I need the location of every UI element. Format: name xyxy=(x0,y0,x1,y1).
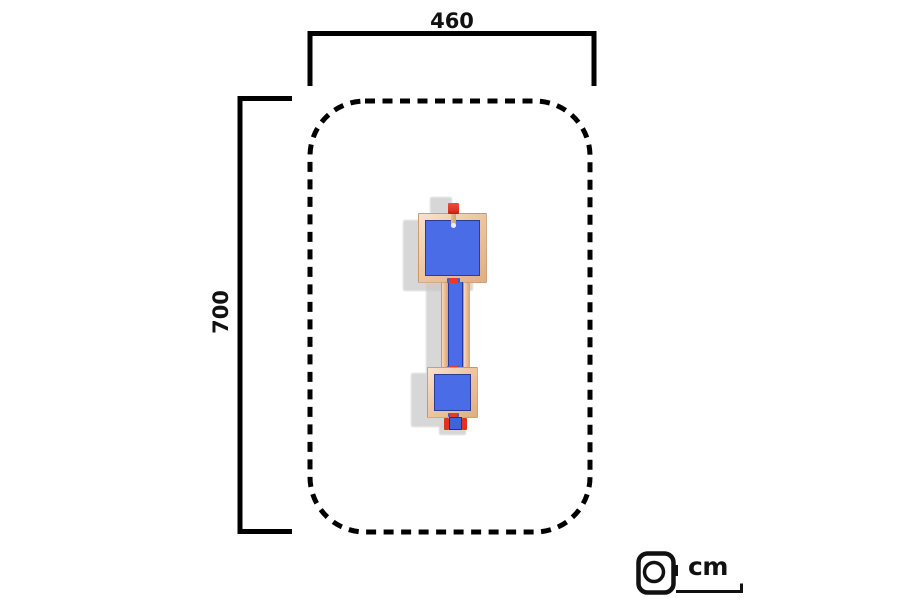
measurement-overlay xyxy=(0,0,900,600)
height-dimension-bracket xyxy=(240,99,292,532)
tape-reel xyxy=(645,563,664,582)
unit-label: cm xyxy=(688,554,728,580)
diagram-canvas: 460 700 xyxy=(0,0,900,600)
safety-zone-outline xyxy=(310,101,590,532)
height-dimension-label: 700 xyxy=(209,262,233,362)
width-dimension-label: 460 xyxy=(402,9,502,33)
width-dimension-bracket xyxy=(310,34,594,87)
unit-indicator: cm xyxy=(630,546,752,598)
tape-blade xyxy=(676,584,742,592)
